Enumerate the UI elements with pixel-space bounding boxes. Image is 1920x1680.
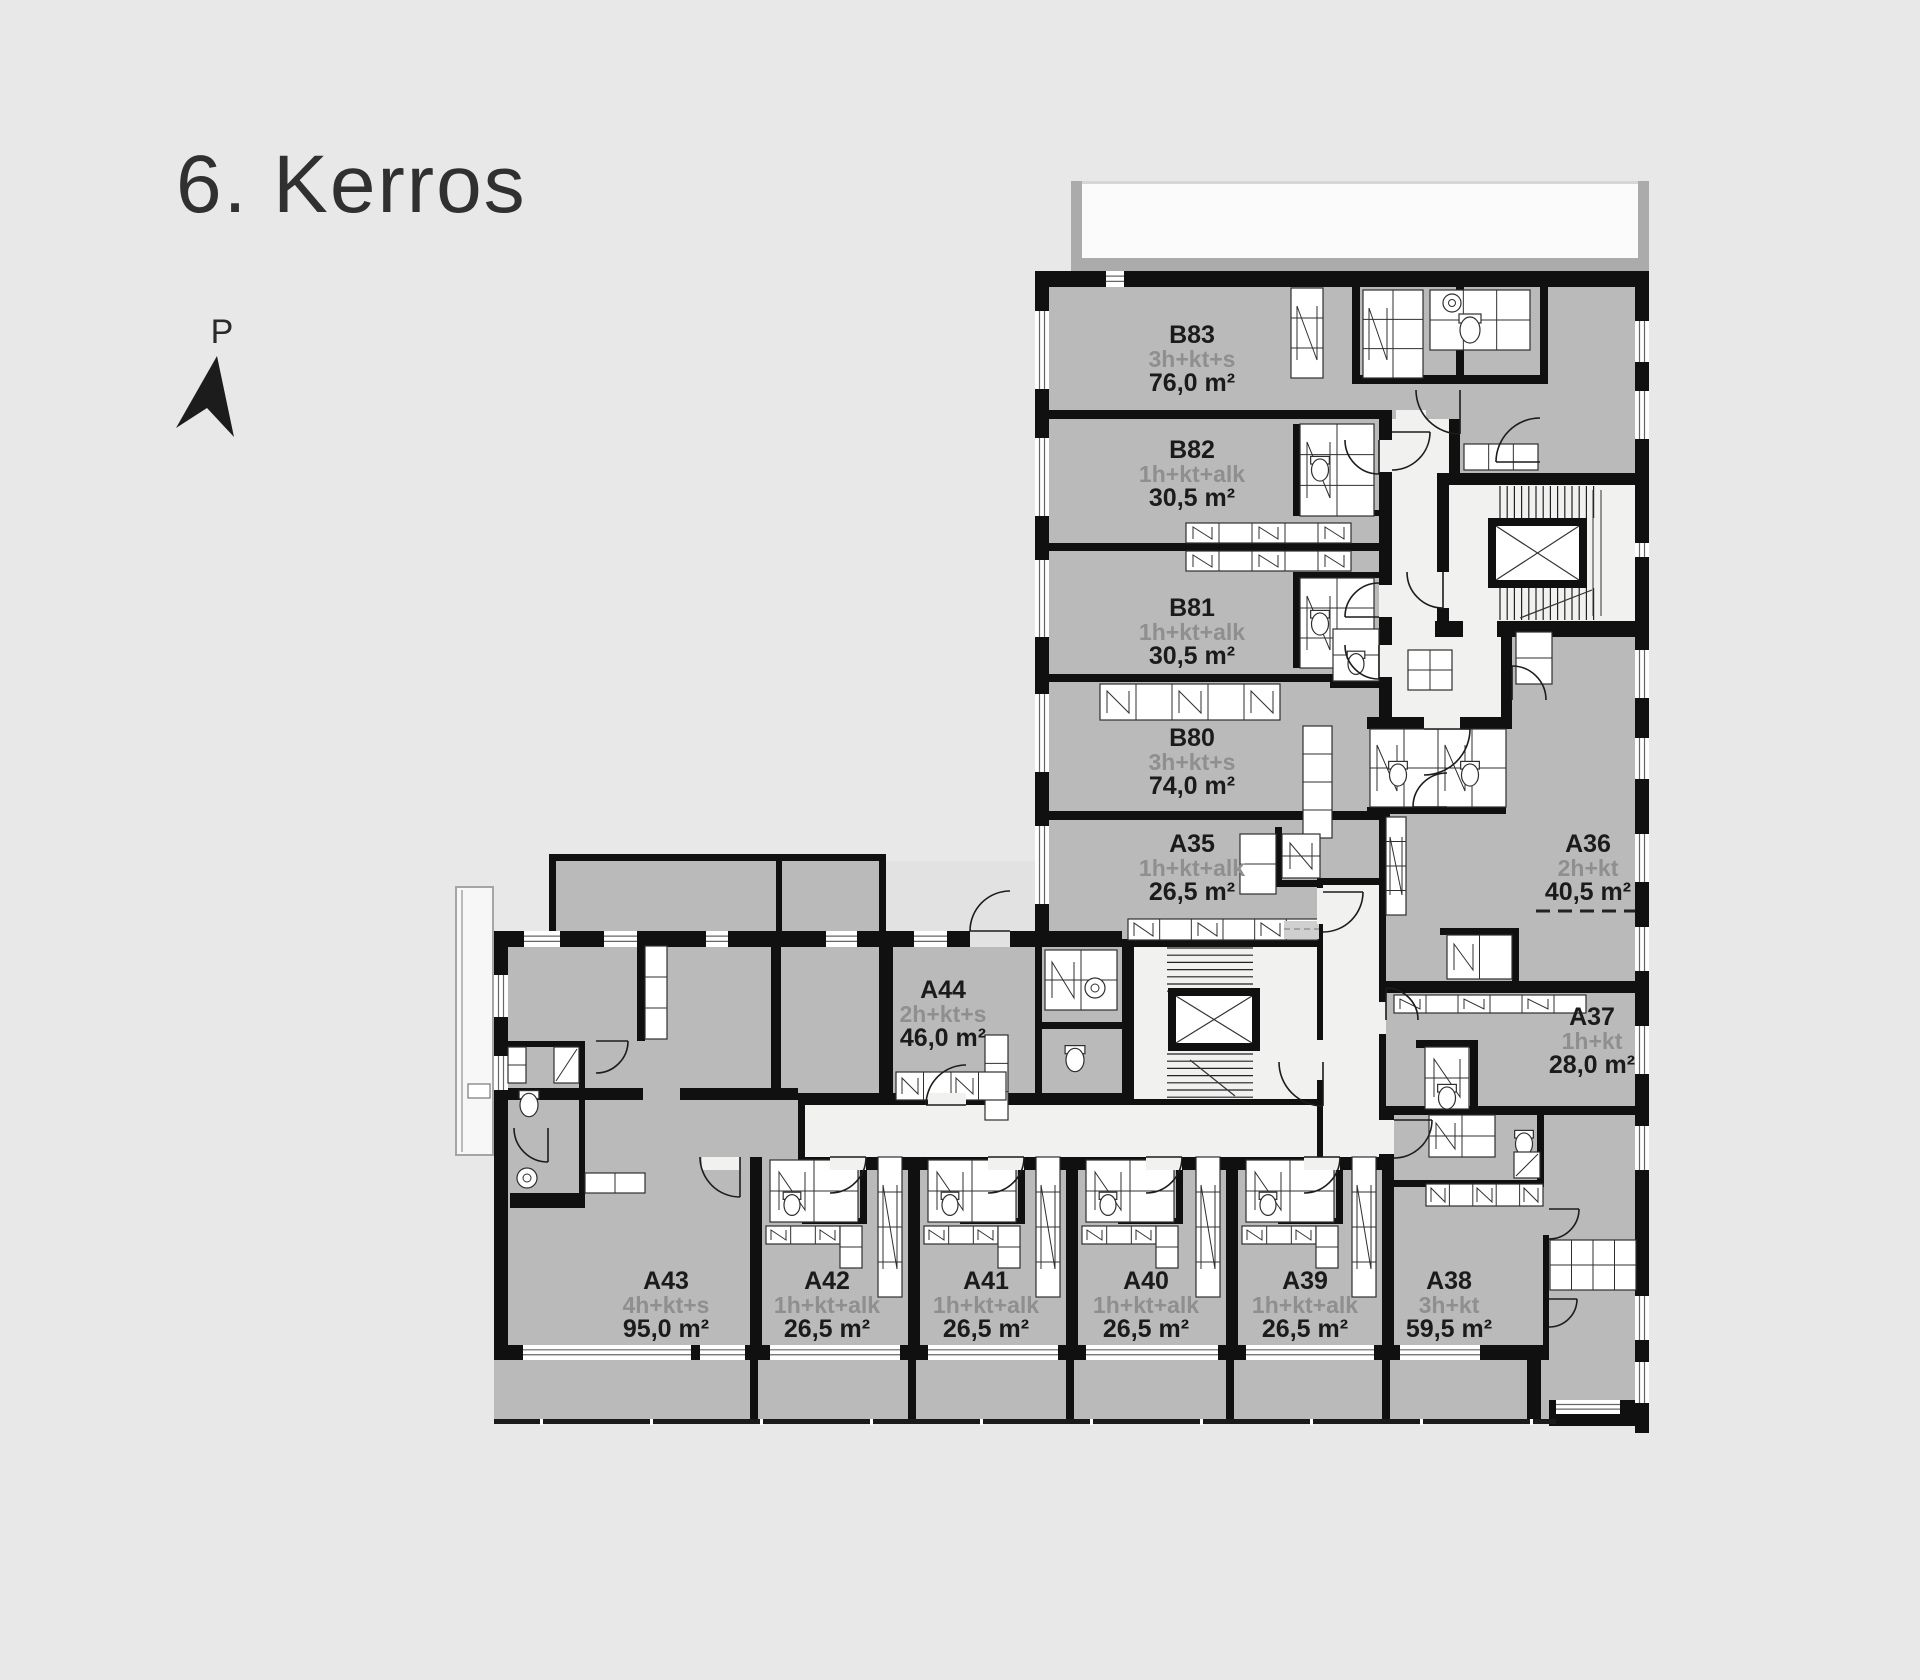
svg-text:P: P [211,313,234,351]
svg-text:A43: A43 [643,1267,689,1295]
svg-text:26,5 m²: 26,5 m² [1149,878,1235,906]
svg-text:30,5 m²: 30,5 m² [1149,642,1235,670]
svg-text:26,5 m²: 26,5 m² [784,1315,870,1343]
svg-text:A40: A40 [1123,1267,1169,1295]
svg-text:74,0 m²: 74,0 m² [1149,772,1235,800]
svg-text:A37: A37 [1569,1003,1615,1031]
svg-text:95,0 m²: 95,0 m² [623,1315,709,1343]
svg-text:59,5 m²: 59,5 m² [1406,1315,1492,1343]
svg-text:76,0 m²: 76,0 m² [1149,369,1235,397]
svg-text:26,5 m²: 26,5 m² [943,1315,1029,1343]
svg-text:A35: A35 [1169,830,1215,858]
svg-text:26,5 m²: 26,5 m² [1262,1315,1348,1343]
svg-text:26,5 m²: 26,5 m² [1103,1315,1189,1343]
svg-text:A41: A41 [963,1267,1009,1295]
svg-text:B80: B80 [1169,724,1215,752]
svg-text:A39: A39 [1282,1267,1328,1295]
svg-text:A38: A38 [1426,1267,1472,1295]
svg-text:B81: B81 [1169,594,1215,622]
svg-text:A42: A42 [804,1267,850,1295]
svg-text:B83: B83 [1169,321,1215,349]
svg-text:6. Kerros: 6. Kerros [176,139,527,230]
svg-text:30,5 m²: 30,5 m² [1149,484,1235,512]
svg-text:A36: A36 [1565,830,1611,858]
svg-text:40,5 m²: 40,5 m² [1545,878,1631,906]
svg-text:46,0 m²: 46,0 m² [900,1024,986,1052]
svg-text:B82: B82 [1169,436,1215,464]
svg-text:A44: A44 [920,976,966,1004]
svg-text:28,0 m²: 28,0 m² [1549,1051,1635,1079]
